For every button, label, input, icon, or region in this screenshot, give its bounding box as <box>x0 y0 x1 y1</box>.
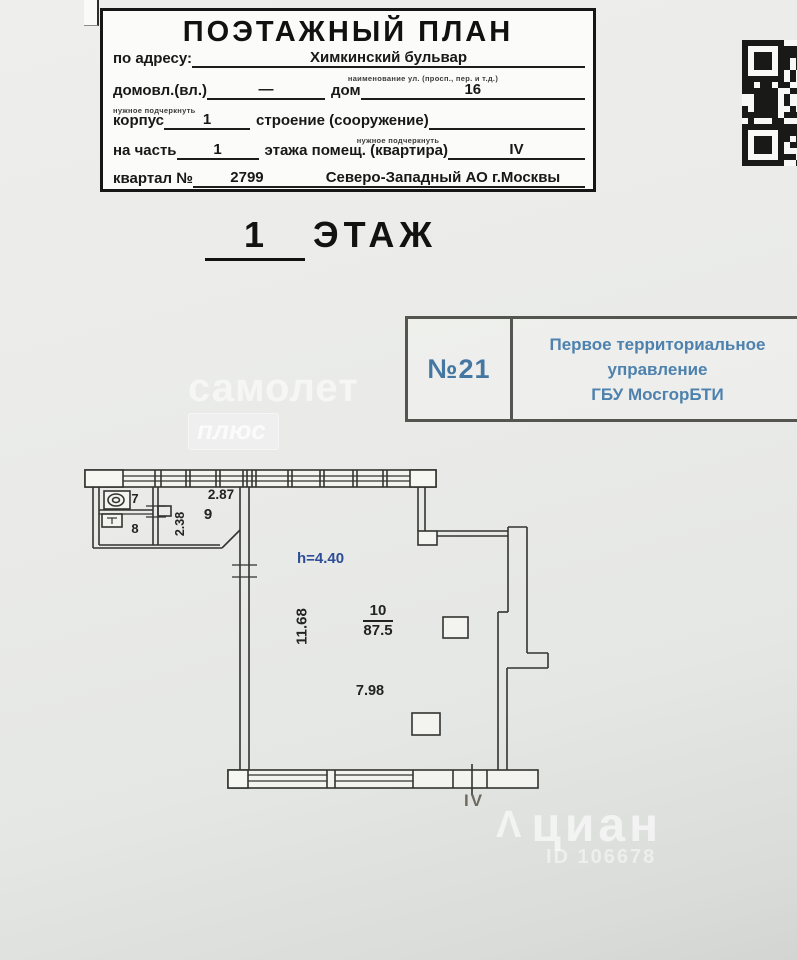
okrug-value: Северо-Западный АО г.Москвы <box>301 169 585 188</box>
watermark-plus-badge: плюс <box>188 413 279 450</box>
cropped-corner-box <box>84 0 99 26</box>
dom-label: дом <box>331 82 361 100</box>
top-window-band <box>85 470 436 487</box>
cian-logo-icon: Λ <box>496 804 521 847</box>
stroenie-label: строение (сооружение) <box>256 112 429 130</box>
korpus-value: 1 <box>164 111 250 130</box>
stamp-text-cell: Первое территориальное управление ГБУ Мо… <box>513 319 797 419</box>
sink-fixture <box>102 514 122 527</box>
kvartal-row: квартал № 2799 Северо-Западный АО г.Моск… <box>103 169 593 188</box>
domovl-row: домовл.(вл.) — дом 16 <box>103 81 593 100</box>
domovl-value: — <box>207 81 325 100</box>
korpus-label: корпус <box>113 112 164 130</box>
stroenie-value <box>429 113 585 130</box>
dom-value: 16 <box>361 81 585 100</box>
kvartal-value: 2799 <box>193 169 301 188</box>
scanned-floor-plan-page: { "header": { "title": "ПОЭТАЖНЫЙ ПЛАН",… <box>0 0 797 960</box>
korpus-row: корпус 1 строение (сооружение) <box>103 111 593 130</box>
room8-number: 8 <box>127 521 143 536</box>
floor-title: 1ЭТАЖ <box>205 214 437 261</box>
qr-code <box>742 40 797 166</box>
watermark-samolet-text: самолет <box>188 366 359 411</box>
etazha-value: IV <box>448 141 585 160</box>
dim-left-height: 11.68 <box>294 596 311 658</box>
etazha-label: этажа помещ. (квартира) <box>265 142 448 160</box>
column-2 <box>412 713 440 735</box>
header-form-box: ПОЭТАЖНЫЙ ПЛАН по адресу: Химкинский бул… <box>100 8 596 192</box>
na-chast-value: 1 <box>177 141 259 160</box>
dim-top-width: 2.87 <box>193 487 249 502</box>
address-row: по адресу: Химкинский бульвар <box>103 49 593 68</box>
ceiling-height-note: h=4.40 <box>297 550 344 567</box>
columns <box>412 617 468 735</box>
floor-number: 1 <box>205 214 305 261</box>
column-1 <box>443 617 468 638</box>
watermark-cian: Λ циан <box>496 798 662 853</box>
stamp-line1: Первое территориальное <box>550 332 766 357</box>
cian-name: циан <box>531 798 662 853</box>
dim-room9-depth: 2.38 <box>173 501 189 547</box>
address-label: по адресу: <box>113 50 192 68</box>
wall-sink <box>158 506 171 516</box>
room9-number: 9 <box>193 506 223 523</box>
floor-plan-drawing <box>80 450 560 820</box>
main-room-left-wall <box>232 487 257 770</box>
section-label: IV <box>464 791 484 811</box>
stamp-line2: управление <box>608 357 708 382</box>
stamp-number: №21 <box>427 354 490 385</box>
chast-row: на часть 1 этажа помещ. (квартира) IV <box>103 141 593 160</box>
room7-number: 7 <box>127 491 143 506</box>
room10-number: 10 <box>363 602 394 622</box>
stamp-line3: ГБУ МосгорБТИ <box>591 382 724 407</box>
watermark-samolet: самолет плюс <box>188 366 359 450</box>
floor-word: ЭТАЖ <box>313 214 437 255</box>
bottom-window-band <box>228 764 538 795</box>
room10-area: 87.5 <box>351 622 405 639</box>
cian-id-text: ID 106678 <box>546 846 656 869</box>
bti-stamp: №21 Первое территориальное управление ГБ… <box>405 316 797 422</box>
room10-label: 10 87.5 <box>351 602 405 639</box>
document-title: ПОЭТАЖНЫЙ ПЛАН <box>103 16 593 49</box>
stamp-number-cell: №21 <box>408 319 513 419</box>
address-value: Химкинский бульвар <box>192 49 585 68</box>
kvartal-label: квартал № <box>113 170 193 188</box>
dim-bottom-width: 7.98 <box>338 683 402 699</box>
na-chast-label: на часть <box>113 142 177 160</box>
domovl-label: домовл.(вл.) <box>113 82 207 100</box>
